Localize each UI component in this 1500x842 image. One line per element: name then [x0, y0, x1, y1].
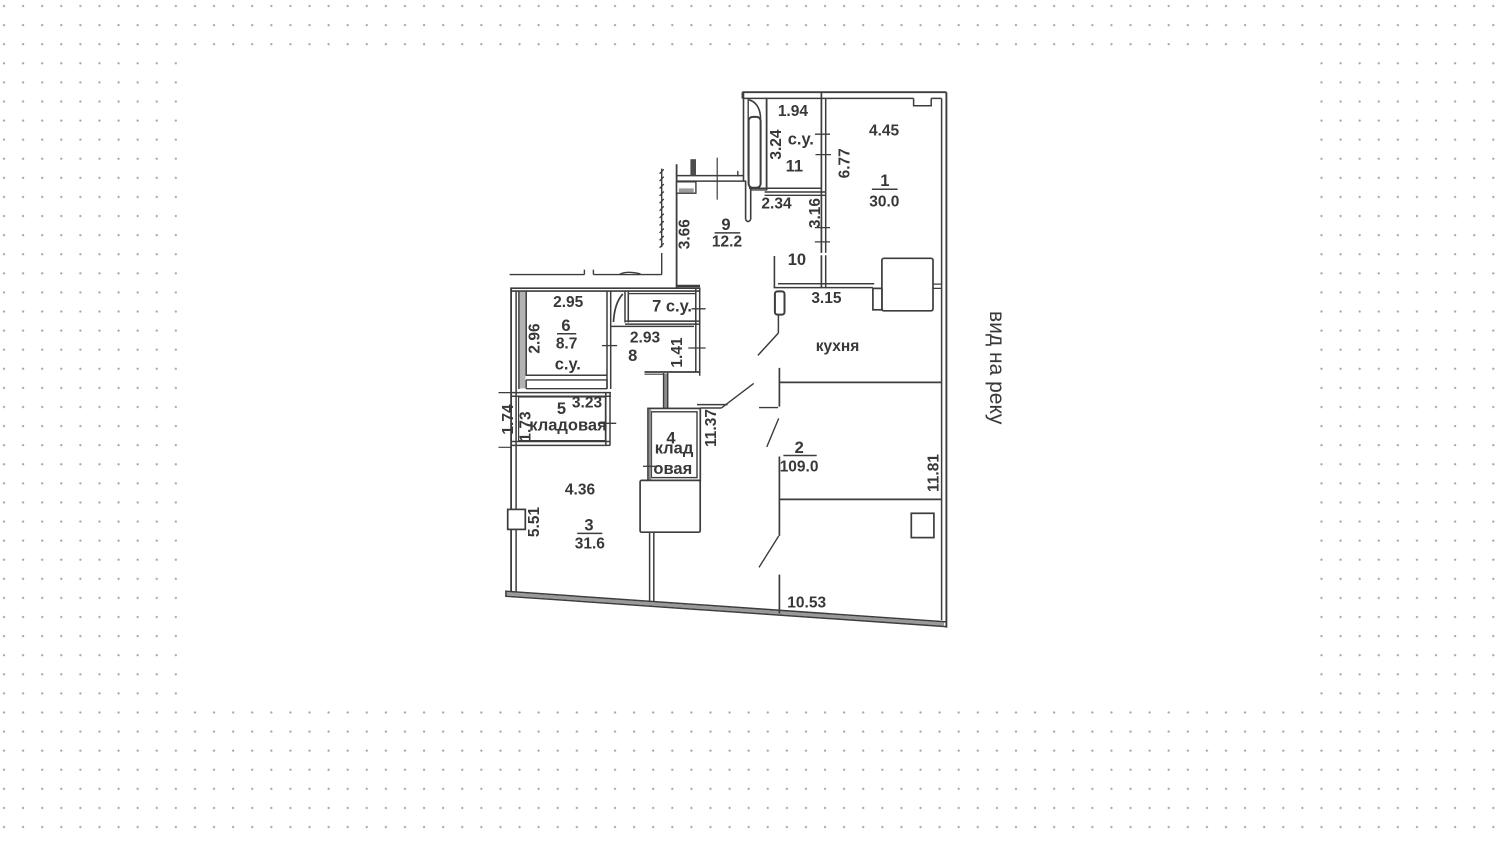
- svg-text:2.34: 2.34: [761, 196, 792, 213]
- svg-text:12.2: 12.2: [712, 234, 742, 251]
- svg-text:11: 11: [786, 157, 803, 175]
- svg-text:кухня: кухня: [816, 338, 860, 355]
- svg-text:6.77: 6.77: [837, 148, 854, 178]
- svg-text:5.51: 5.51: [526, 507, 543, 538]
- svg-text:с.у.: с.у.: [555, 355, 581, 373]
- svg-text:2: 2: [795, 439, 804, 457]
- svg-text:4.45: 4.45: [869, 123, 900, 140]
- svg-text:2.95: 2.95: [553, 294, 584, 311]
- svg-text:11.37: 11.37: [703, 409, 720, 447]
- svg-text:9: 9: [721, 216, 730, 234]
- svg-text:3.15: 3.15: [811, 290, 842, 307]
- svg-text:6: 6: [561, 317, 570, 335]
- svg-text:2.96: 2.96: [526, 323, 543, 354]
- svg-text:3: 3: [584, 516, 593, 534]
- svg-text:10: 10: [788, 251, 806, 269]
- svg-text:клад: клад: [655, 440, 694, 458]
- svg-text:1.41: 1.41: [669, 337, 686, 368]
- svg-text:2.93: 2.93: [630, 329, 661, 346]
- svg-text:8: 8: [628, 347, 637, 365]
- svg-text:вид на реку: вид на реку: [985, 311, 1008, 425]
- svg-text:7 с.у.: 7 с.у.: [652, 298, 692, 316]
- svg-text:8.7: 8.7: [556, 336, 578, 353]
- svg-text:овая: овая: [653, 460, 692, 478]
- svg-text:1: 1: [880, 172, 889, 190]
- svg-text:1.73: 1.73: [517, 411, 534, 442]
- svg-text:кладовая: кладовая: [529, 416, 606, 434]
- svg-text:3.23: 3.23: [572, 394, 603, 411]
- svg-text:3.66: 3.66: [677, 219, 694, 250]
- svg-text:3.24: 3.24: [768, 129, 785, 160]
- svg-text:31.6: 31.6: [575, 536, 606, 553]
- svg-text:3.16: 3.16: [807, 198, 824, 229]
- svg-text:11.81: 11.81: [926, 454, 943, 492]
- svg-text:1.74: 1.74: [500, 404, 517, 435]
- svg-text:1.94: 1.94: [778, 103, 809, 120]
- svg-text:с.у.: с.у.: [788, 130, 814, 148]
- svg-text:10.53: 10.53: [787, 595, 826, 612]
- svg-text:5: 5: [557, 400, 566, 418]
- svg-text:4.36: 4.36: [565, 482, 596, 499]
- svg-text:30.0: 30.0: [869, 193, 899, 210]
- svg-text:109.0: 109.0: [780, 458, 819, 475]
